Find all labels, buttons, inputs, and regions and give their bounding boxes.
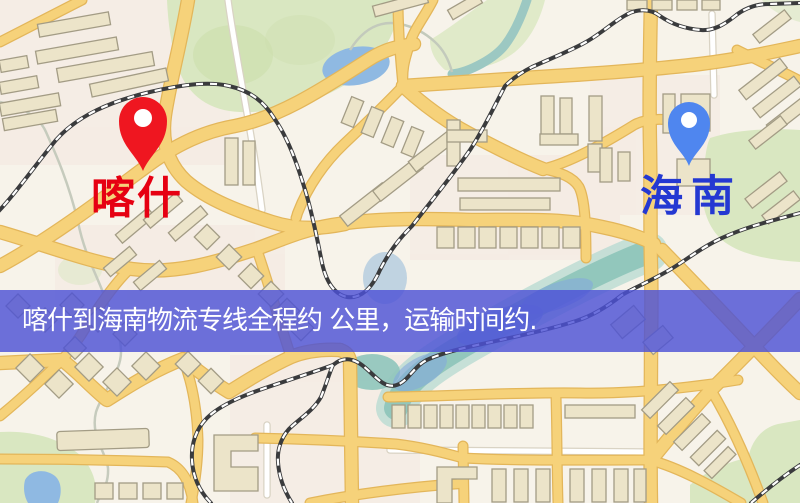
origin-label: 喀什 <box>91 177 183 221</box>
destination-label: 海南 <box>640 176 742 219</box>
map-canvas <box>0 0 800 503</box>
route-info-banner: 喀什到海南物流专线全程约 公里，运输时间约. <box>0 290 800 352</box>
logistics-route-map-image: 喀什 海南 喀什到海南物流专线全程约 公里，运输时间约. <box>0 0 800 503</box>
route-info-text: 喀什到海南物流专线全程约 公里，运输时间约. <box>0 290 800 352</box>
